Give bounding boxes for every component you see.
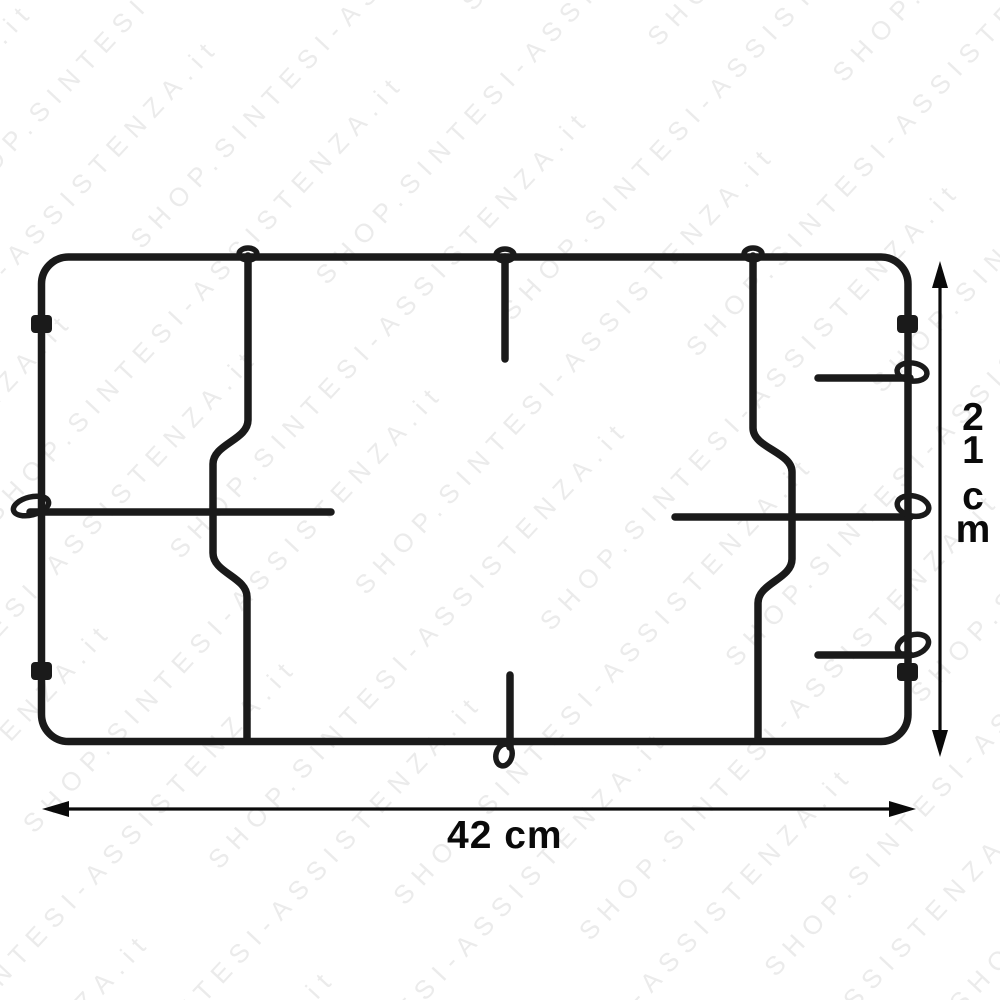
mounting-tab <box>31 662 52 680</box>
arrowhead-up-icon <box>932 261 948 288</box>
wrap-joint <box>494 742 515 767</box>
mounting-tab <box>897 663 918 681</box>
arrowhead-down-icon <box>932 730 948 757</box>
arrowhead-left-icon <box>42 801 69 817</box>
height-label-char: m <box>949 513 997 546</box>
width-dimension-label: 42 cm <box>447 814 563 858</box>
wrap-joint <box>895 631 932 660</box>
height-dimension-arrow <box>932 261 948 757</box>
product-image: SHOP.SINTESI-ASSISTENZA.it SHOP.SINTESI-… <box>0 0 1000 1000</box>
mounting-tabs <box>31 315 918 681</box>
wrap-joint <box>896 361 928 383</box>
inner-right-wire <box>753 256 792 741</box>
inner-left-wire <box>213 256 248 741</box>
arrowhead-right-icon <box>889 801 916 817</box>
height-label-char: 1 <box>949 434 997 467</box>
mounting-tab <box>897 315 918 333</box>
height-dimension-label: 2 1 c m <box>949 401 997 546</box>
mounting-tab <box>31 315 52 333</box>
outer-frame-wire <box>42 257 909 742</box>
grid-wireframe <box>30 256 910 747</box>
